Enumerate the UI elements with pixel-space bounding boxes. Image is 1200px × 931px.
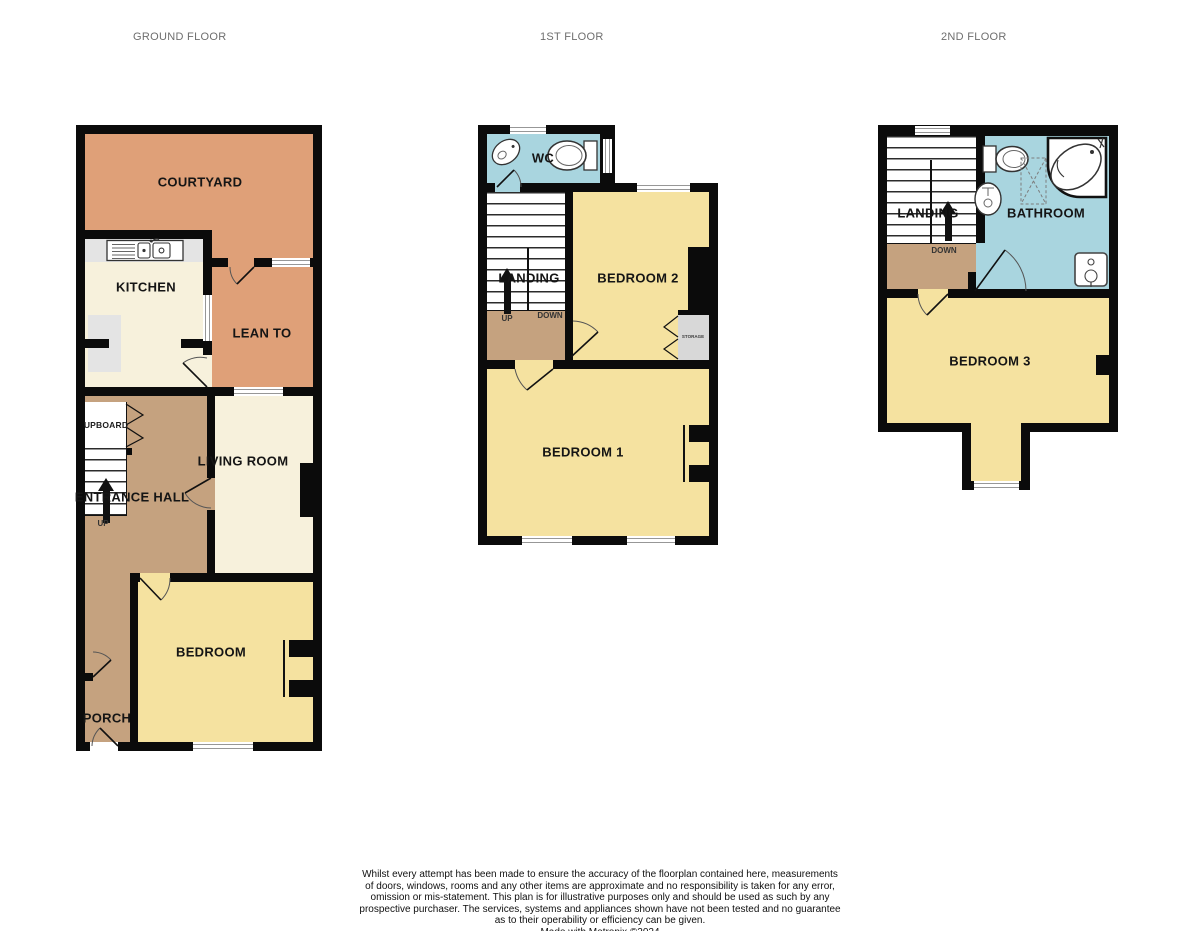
window [510, 125, 546, 134]
wall-stub [968, 272, 976, 289]
second-floor-title: 2ND FLOOR [941, 32, 1007, 43]
landing-label: LANDING [897, 207, 958, 220]
courtyard-room [212, 230, 313, 258]
staircase [887, 136, 976, 244]
chimney-breast [283, 640, 285, 697]
wall [976, 136, 985, 243]
chimney-breast [688, 247, 709, 310]
front-door-opening [90, 742, 118, 751]
window [603, 139, 612, 173]
door-opening [207, 478, 215, 510]
bedroom-1-label: BEDROOM 1 [542, 446, 623, 459]
storage-label: STORAGE [682, 335, 704, 340]
up-label: UP [501, 315, 512, 323]
bedroom-3-dormer [971, 432, 1021, 481]
landing-label: LANDING [498, 272, 559, 285]
courtyard-label: COURTYARD [158, 176, 243, 189]
door-opening [918, 289, 948, 298]
metropix-credit: Made with Metropix ©2024 [359, 927, 840, 931]
lean-to-label: LEAN TO [233, 327, 292, 340]
cupboard-label: UPBOARD [84, 421, 128, 430]
living-room [215, 396, 313, 573]
disclaimer-line: as to their operability or efficiency ca… [359, 915, 840, 927]
first-floor-title: 1ST FLOOR [540, 32, 604, 43]
window [203, 295, 212, 341]
wall [678, 310, 709, 315]
second-floor-plan: LANDING DOWN BATHROOM BEDROOM 3 [878, 125, 1118, 490]
bathroom-label: BATHROOM [1007, 207, 1085, 220]
disclaimer-line: Whilst every attempt has been made to en… [359, 869, 840, 881]
door-opening [140, 573, 170, 582]
down-label: DOWN [537, 312, 562, 320]
door-opening [228, 258, 254, 267]
wall [76, 387, 322, 396]
kitchen-counter [85, 239, 203, 262]
disclaimer-line: omission or mis-statement. This plan is … [359, 892, 840, 904]
stair-divider [930, 160, 932, 243]
disclaimer-text: Whilst every attempt has been made to en… [359, 869, 840, 931]
bedroom-label: BEDROOM [176, 646, 246, 659]
wall-stub [85, 339, 109, 348]
down-label: DOWN [931, 247, 956, 255]
ground-floor-plan: COURTYARD KITCHEN LEAN TO UPBOARD LIVING… [76, 125, 322, 751]
wall [76, 230, 212, 239]
ground-floor-title: GROUND FLOOR [133, 32, 226, 43]
window [915, 126, 950, 135]
floorplan-page: GROUND FLOOR 1ST FLOOR 2ND FLOOR [0, 0, 1200, 931]
wall-stub [85, 673, 93, 681]
staircase [487, 192, 565, 311]
window [522, 536, 572, 545]
door-opening [515, 360, 553, 369]
window [974, 481, 1019, 490]
door-opening [203, 355, 212, 387]
bedroom-2-label: BEDROOM 2 [597, 272, 678, 285]
living-room-label: LIVING ROOM [198, 455, 289, 468]
wall [478, 360, 718, 369]
wall [565, 192, 573, 325]
bedroom-room [138, 582, 313, 742]
chimney-breast [683, 425, 685, 482]
chimney-breast [289, 680, 313, 697]
porch-label: PORCH [83, 712, 131, 725]
window [272, 258, 310, 267]
window [637, 183, 690, 192]
door-opening [495, 183, 520, 192]
disclaimer-line: of doors, windows, rooms and any other i… [359, 881, 840, 893]
bedroom-3-label: BEDROOM 3 [949, 355, 1030, 368]
window [627, 536, 675, 545]
wc-label: WC [532, 152, 554, 165]
bathroom-room [976, 243, 985, 289]
wall [878, 289, 1118, 298]
chimney-breast [300, 463, 313, 517]
first-floor-plan: WC LANDING UP DOWN BEDROOM 2 STORAGE BED… [478, 125, 718, 545]
kitchen-label: KITCHEN [116, 281, 176, 294]
disclaimer-line: prospective purchaser. The services, sys… [359, 904, 840, 916]
window [234, 387, 283, 396]
chimney-breast [1096, 355, 1109, 375]
chimney-breast [689, 425, 709, 442]
window [193, 742, 253, 751]
chimney-breast [689, 465, 709, 482]
bedroom-3-room [971, 423, 1021, 432]
entrance-hall-label: ENTRANCE HALL [75, 491, 189, 504]
chimney-breast [289, 640, 313, 657]
up-label: UP [97, 520, 108, 528]
